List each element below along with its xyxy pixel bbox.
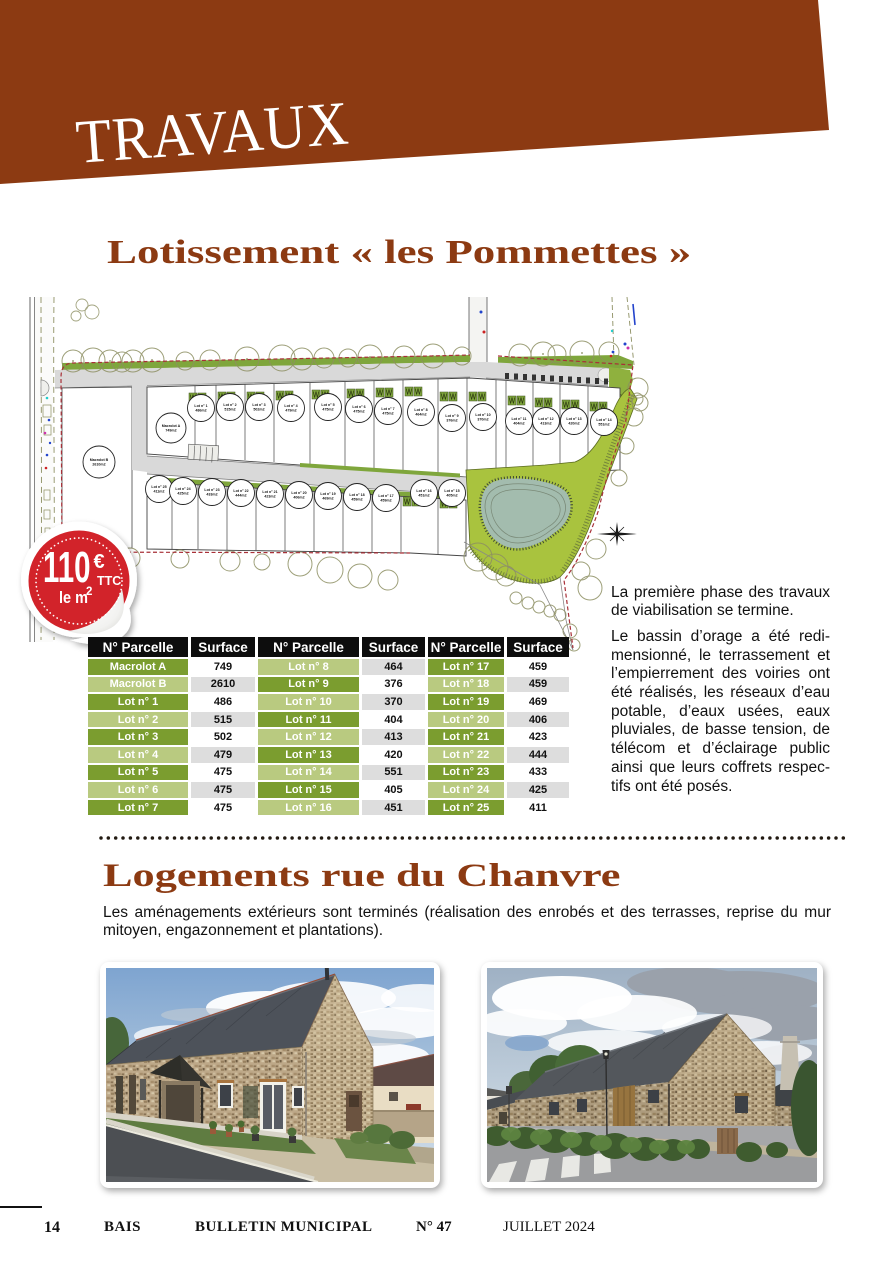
svg-text:459m2: 459m2: [380, 499, 391, 503]
svg-text:376m2: 376m2: [446, 419, 457, 423]
svg-text:404m2: 404m2: [513, 422, 524, 426]
svg-text:Lot n° 21: Lot n° 21: [262, 490, 277, 494]
svg-text:749m2: 749m2: [165, 429, 176, 433]
svg-text:475m2: 475m2: [322, 408, 333, 412]
svg-text:425m2: 425m2: [177, 492, 188, 496]
svg-text:406m2: 406m2: [293, 496, 304, 500]
svg-text:Lot n° 24: Lot n° 24: [175, 487, 190, 491]
svg-text:Lot n° 18: Lot n° 18: [349, 493, 364, 497]
svg-text:Macrolot B: Macrolot B: [90, 458, 109, 462]
svg-text:Macrolot A: Macrolot A: [162, 424, 181, 428]
svg-text:2610m2: 2610m2: [92, 463, 105, 467]
svg-text:Lot n° 4: Lot n° 4: [284, 404, 297, 408]
svg-text:Lot n° 12: Lot n° 12: [538, 417, 553, 421]
svg-text:479m2: 479m2: [285, 409, 296, 413]
svg-text:Lot n° 2: Lot n° 2: [223, 403, 236, 407]
svg-text:Lot n° 17: Lot n° 17: [378, 494, 393, 498]
svg-text:Lot n° 11: Lot n° 11: [511, 417, 526, 421]
svg-text:515m2: 515m2: [224, 408, 235, 412]
svg-text:411m2: 411m2: [154, 490, 165, 494]
svg-text:486m2: 486m2: [195, 409, 206, 413]
svg-text:Lot n° 19: Lot n° 19: [320, 492, 335, 496]
svg-text:502m2: 502m2: [253, 408, 264, 412]
svg-text:444m2: 444m2: [235, 494, 246, 498]
svg-text:Lot n° 5: Lot n° 5: [321, 403, 334, 407]
svg-text:Lot n° 14: Lot n° 14: [596, 418, 611, 422]
svg-text:433m2: 433m2: [206, 493, 217, 497]
svg-text:Lot n° 25: Lot n° 25: [151, 485, 166, 489]
svg-text:Lot n° 13: Lot n° 13: [566, 417, 581, 421]
svg-text:Lot n° 15: Lot n° 15: [444, 489, 459, 493]
svg-text:Lot n° 16: Lot n° 16: [416, 489, 431, 493]
svg-text:451m2: 451m2: [418, 494, 429, 498]
svg-text:Lot n° 7: Lot n° 7: [381, 407, 394, 411]
svg-text:Lot n° 8: Lot n° 8: [414, 408, 427, 412]
svg-text:Lot n° 1: Lot n° 1: [194, 404, 207, 408]
svg-text:Lot n° 22: Lot n° 22: [233, 489, 248, 493]
svg-text:413m2: 413m2: [540, 422, 551, 426]
svg-text:420m2: 420m2: [568, 422, 579, 426]
svg-text:Lot n° 20: Lot n° 20: [291, 491, 306, 495]
svg-text:475m2: 475m2: [353, 410, 364, 414]
svg-text:Lot n° 23: Lot n° 23: [204, 488, 219, 492]
svg-text:Lot n° 9: Lot n° 9: [445, 414, 458, 418]
svg-text:423m2: 423m2: [264, 495, 275, 499]
svg-text:Lot n° 3: Lot n° 3: [252, 403, 265, 407]
svg-text:551m2: 551m2: [598, 423, 609, 427]
svg-text:475m2: 475m2: [382, 412, 393, 416]
svg-text:370m2: 370m2: [477, 418, 488, 422]
svg-text:469m2: 469m2: [322, 497, 333, 501]
svg-text:Lot n° 6: Lot n° 6: [352, 405, 365, 409]
svg-text:405m2: 405m2: [446, 494, 457, 498]
svg-text:Lot n° 10: Lot n° 10: [475, 413, 490, 417]
svg-text:459m2: 459m2: [351, 498, 362, 502]
svg-text:464m2: 464m2: [415, 413, 426, 417]
